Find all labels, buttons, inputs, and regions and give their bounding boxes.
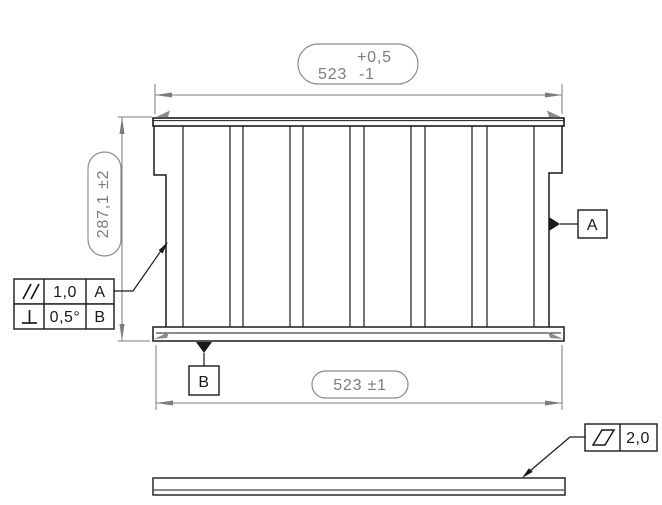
side-view-outline [153, 478, 565, 495]
arrow-left-icon [156, 401, 173, 406]
part-top-rail [153, 118, 564, 126]
body-left-edge [154, 126, 166, 327]
drawing-canvas: +0,5 523 -1 287,1 ±2 523 ±1 1,0 A [0, 0, 662, 505]
part-bottom-rail [153, 327, 564, 341]
datum-a-label: A [587, 217, 598, 234]
side-view-bar [153, 478, 565, 495]
datum-b-label: B [198, 374, 209, 391]
technical-drawing: +0,5 523 -1 287,1 ±2 523 ±1 1,0 A [0, 0, 662, 505]
rib-lines [183, 126, 534, 327]
corner-arrow-icon [155, 111, 170, 118]
corner-arrow-icon [547, 111, 562, 118]
arrow-right-icon [545, 93, 562, 98]
datum-triangle-icon [196, 342, 212, 353]
fcf-parallelism: 1,0 A [14, 242, 168, 304]
fcf-flatness: 2,0 [522, 424, 657, 478]
fcf-parallelism-tolerance: 1,0 [53, 284, 77, 301]
part-body [154, 126, 562, 327]
flatness-leader-line [524, 437, 585, 476]
fcf-parallelism-datum: A [94, 284, 105, 301]
arrow-down-icon [120, 324, 125, 341]
fcf-perpendicularity: 0,5° B [14, 304, 114, 329]
dimension-top: +0,5 523 -1 [155, 44, 562, 114]
dim-top-tol-upper: +0,5 [357, 49, 392, 66]
datum-b: B [189, 342, 219, 395]
arrow-left-icon [155, 93, 172, 98]
top-rail-outline [153, 118, 564, 126]
dim-bottom-value: 523 ±1 [333, 377, 387, 394]
fcf-flatness-tolerance: 2,0 [626, 430, 650, 447]
dim-top-tol-lower: -1 [359, 66, 375, 83]
fcf-perpendicularity-datum: B [94, 309, 105, 326]
bottom-rail-outline [153, 327, 564, 341]
dim-top-value: 523 [318, 66, 347, 83]
fcf-perpendicularity-tolerance: 0,5° [50, 309, 81, 326]
arrow-up-icon [120, 117, 125, 134]
corner-attach-arrows [154, 111, 563, 340]
arrow-right-icon [545, 401, 562, 406]
datum-triangle-icon [549, 217, 560, 231]
datum-a: A [549, 210, 607, 238]
dim-left-value: 287,1 ±2 [95, 170, 112, 239]
